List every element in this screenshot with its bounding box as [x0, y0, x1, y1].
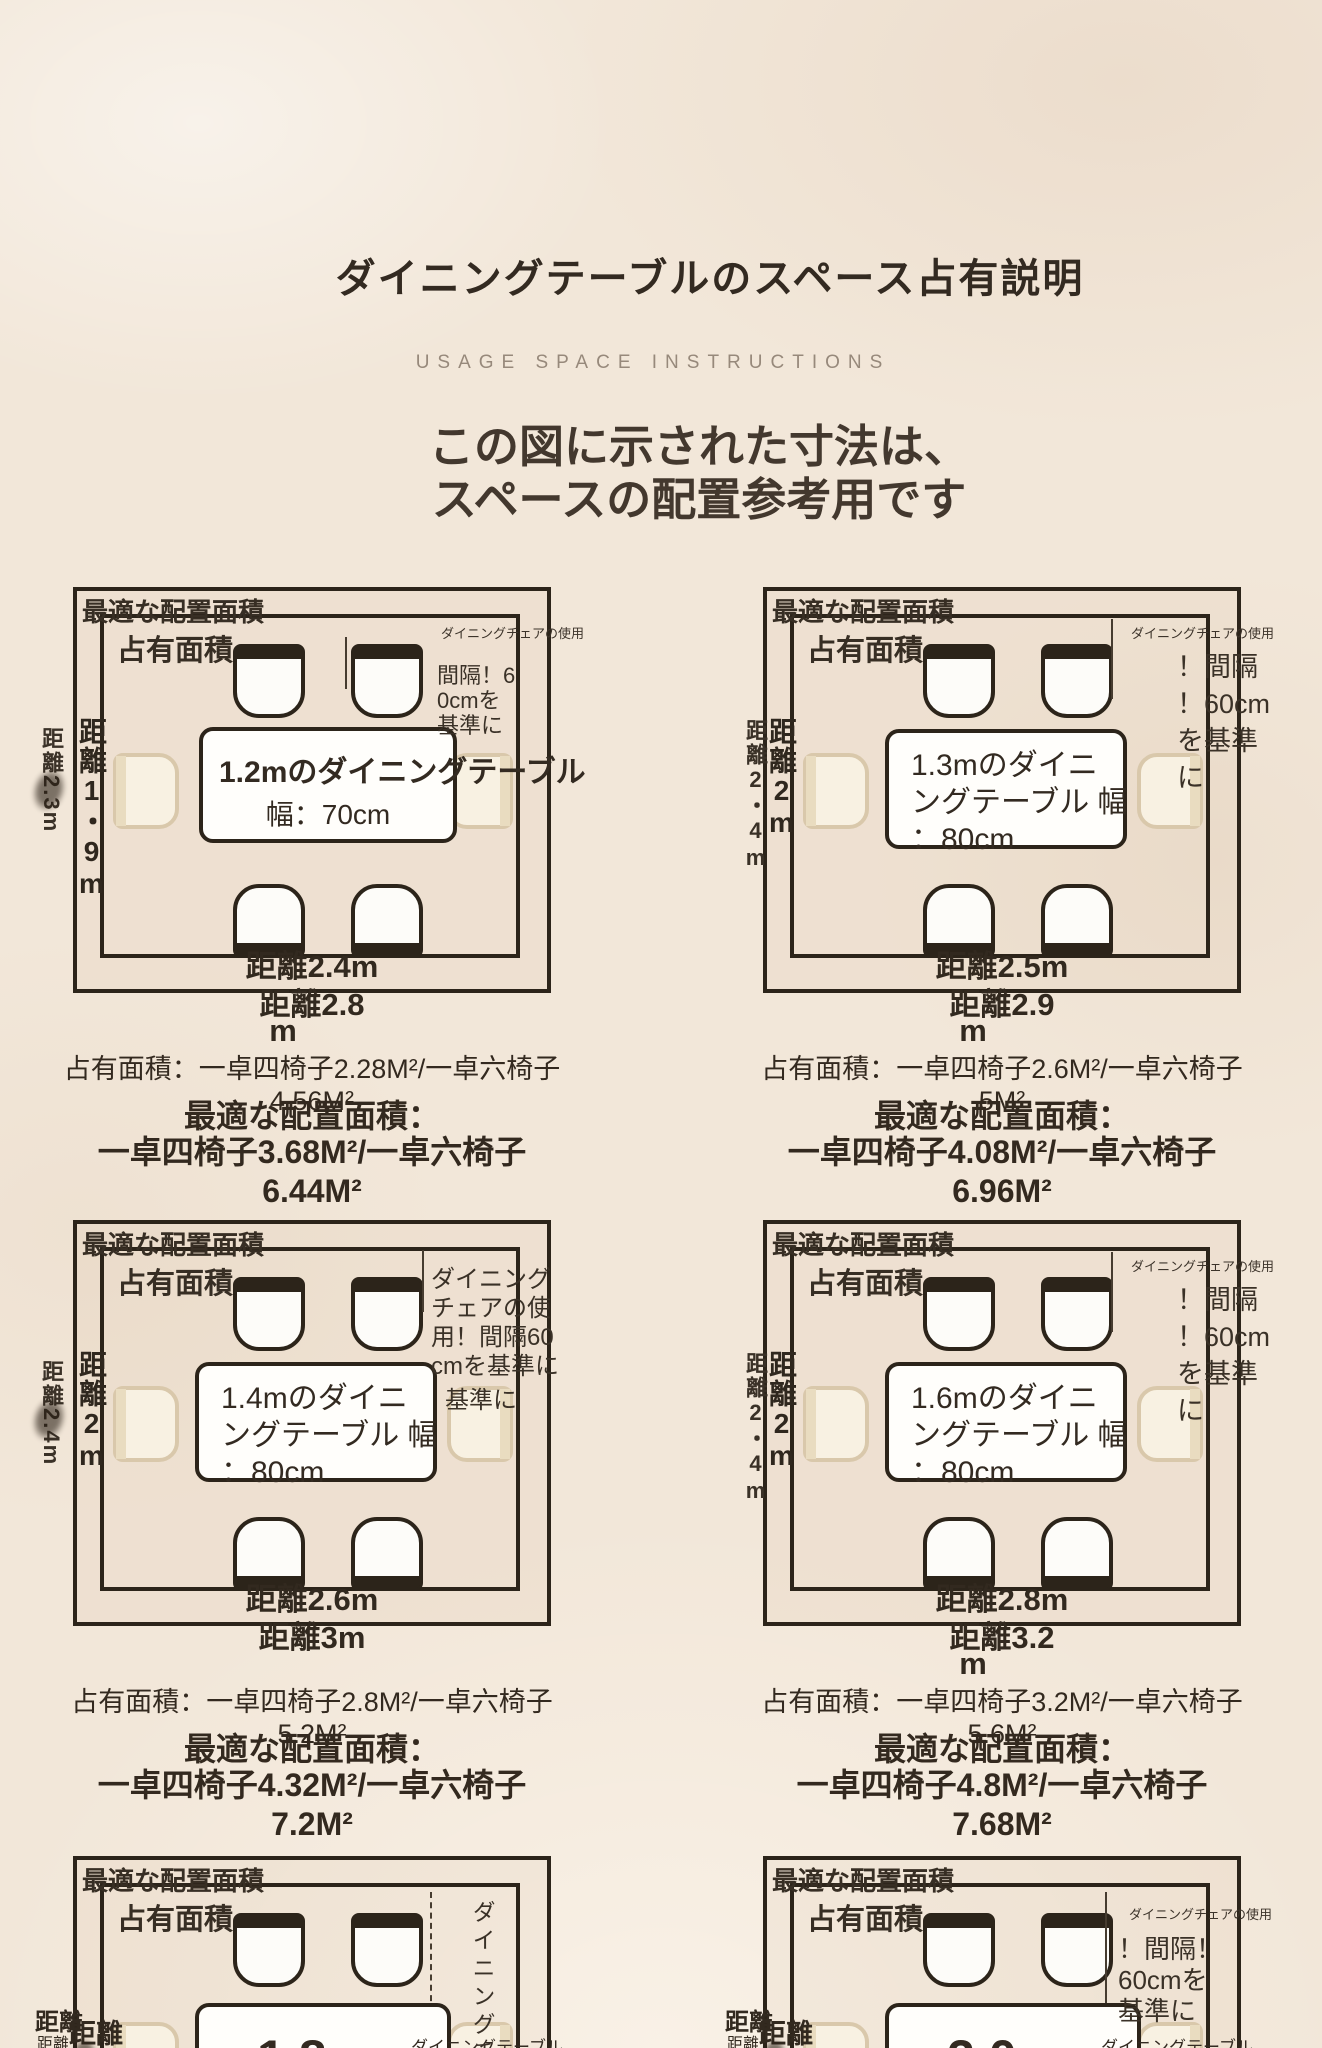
note-line: 間隔！6	[437, 663, 515, 688]
optimal-area-label: 最適な配置面積	[772, 1861, 954, 1898]
chair-usage-note: ダイニングチェアの使用	[1131, 623, 1274, 642]
chair-top-right	[351, 1277, 423, 1351]
note-line: 基準に	[1118, 1996, 1222, 2027]
panel-table-1-4m: 最適な配置面積 占有面積 1.4mのダイニ ングテーブル 幅 ：80cm ダイニ…	[73, 1220, 551, 1626]
chair-top-left	[923, 1913, 995, 1987]
chair-spacing-note: ダイニング チェアの使 用！間隔60 cmを基準に 基準に	[431, 1265, 559, 1415]
note-line: 用！間隔60	[431, 1323, 559, 1352]
optimal-area-label: 最適な配置面積	[82, 1861, 264, 1898]
panel-table-1-3m: 最適な配置面積 占有面積 1.3mのダイニ ングテーブル 幅 ：80cm ダイニ…	[763, 587, 1241, 993]
distance-left-inner: 距離1・9m	[71, 717, 111, 900]
table-size-label: 1.2mのダイニングテーブル	[219, 747, 453, 791]
optimal-area-label: 最適な配置面積	[82, 592, 264, 629]
note-leader-line	[1111, 1252, 1113, 1332]
chair-side-left	[803, 1386, 869, 1462]
chair-side-left	[113, 1386, 179, 1462]
dimension-note-line2: スペースの配置参考用です	[38, 473, 1322, 526]
table-label-line: ：80cm	[911, 1454, 1123, 1491]
chair-top-left	[233, 644, 305, 718]
note-line: を基準	[1177, 723, 1270, 760]
table-label-line: 1.3mのダイニ	[911, 747, 1123, 784]
optimal-area-summary-value: 一卓四椅子4.08M²/一卓六椅子6.96M²	[749, 1127, 1256, 1210]
chair-spacing-note: ！間隔 ！60cm を基準 に	[1177, 649, 1270, 797]
note-leader-line	[422, 1250, 424, 1312]
table-label-line: ングテーブル 幅	[911, 1417, 1123, 1454]
dining-table-shape: 1.2mのダイニングテーブル 幅：70cm	[199, 727, 457, 843]
chair-spacing-note-vertical: ダイニングチェ	[465, 1900, 499, 2048]
optimal-area-label: 最適な配置面積	[772, 1225, 954, 1262]
chair-side-left	[803, 753, 869, 829]
note-line: ！間隔	[1177, 649, 1270, 686]
chair-side-left	[113, 753, 179, 829]
dining-table-space-infographic: ダイニングテーブルのスペース占有説明 USAGE SPACE INSTRUCTI…	[0, 0, 1322, 2048]
chair-usage-note: ダイニングチェアの使用	[1129, 1904, 1272, 1923]
chair-top-left	[923, 644, 995, 718]
dining-table-shape: 1.3mのダイニ ングテーブル 幅 ：80cm	[885, 729, 1127, 849]
dining-table-shape: 2.0m ダイニングテーブル	[885, 2003, 1141, 2048]
distance-bottom-outer-unit: m	[933, 1013, 1013, 1049]
distance-left-inner: 距離2m	[761, 1350, 801, 1472]
distance-left-inner: 距離2m	[761, 717, 801, 839]
chair-top-left	[923, 1277, 995, 1351]
optimal-area-label: 最適な配置面積	[82, 1225, 264, 1262]
occupied-area-label: 占有面積	[807, 627, 923, 669]
note-line: 基準に	[445, 1386, 559, 1415]
note-line: ！60cm	[1177, 686, 1270, 723]
note-line: cmを基準に	[431, 1352, 559, 1381]
dimension-note-line1: この図に示された寸法は、	[38, 420, 1322, 473]
panel-table-1-8m: 最適な配置面積 占有面積 1.8m ダイニングテーブル ダイニングチェ 距離 距…	[73, 1856, 551, 2048]
page-title: ダイニングテーブルのスペース占有説明	[49, 246, 1322, 304]
table-label-line: ングテーブル 幅	[221, 1417, 433, 1454]
chair-top-right	[1041, 1913, 1113, 1987]
dining-table-shape: 1.8m ダイニングテーブル	[195, 2003, 451, 2048]
distance-bottom-outer: 距離3m	[73, 1612, 551, 1657]
panel-table-2-0m: 最適な配置面積 占有面積 2.0m ダイニングテーブル ダイニングチェアの使用 …	[763, 1856, 1241, 2048]
note-line: に	[1177, 1393, 1270, 1430]
table-size-label: 2.0m	[947, 2029, 1061, 2048]
note-leader-line	[345, 637, 347, 689]
occupied-area-label: 占有面積	[117, 627, 233, 669]
chair-spacing-note: 間隔！6 0cmを 基準に	[437, 663, 515, 738]
note-line: 基準に	[437, 713, 515, 738]
panel-table-1-2m: 最適な配置面積 占有面積 1.2mのダイニングテーブル 幅：70cm ダイニング…	[73, 587, 551, 993]
note-line: ！間隔！	[1118, 1934, 1222, 1965]
note-line: を基準	[1177, 1356, 1270, 1393]
table-small-label: ダイニングテーブル	[1101, 2033, 1253, 2048]
occupied-area-label: 占有面積	[807, 1260, 923, 1302]
dimension-note: この図に示された寸法は、 スペースの配置参考用です	[38, 420, 1322, 526]
table-size-label: 1.8m	[257, 2029, 371, 2048]
note-line: 0cmを	[437, 688, 515, 713]
chair-top-right	[1041, 644, 1113, 718]
chair-top-left	[233, 1277, 305, 1351]
table-label-line: 1.4mのダイニ	[221, 1380, 433, 1417]
distance-bottom-outer-unit: m	[243, 1013, 323, 1049]
panel-table-1-6m: 最適な配置面積 占有面積 1.6mのダイニ ングテーブル 幅 ：80cm ダイニ…	[763, 1220, 1241, 1626]
table-label-line: 1.6mのダイニ	[911, 1380, 1123, 1417]
chair-usage-note: ダイニングチェアの使用	[1131, 1256, 1274, 1275]
chair-top-right	[351, 644, 423, 718]
chair-usage-note: ダイニングチェアの使用	[441, 623, 584, 642]
optimal-area-summary-value: 一卓四椅子3.68M²/一卓六椅子6.44M²	[59, 1127, 566, 1210]
optimal-area-summary-value: 一卓四椅子4.8M²/一卓六椅子7.68M²	[749, 1760, 1256, 1843]
note-line: ダイニング	[431, 1265, 559, 1294]
occupied-area-label: 占有面積	[117, 1260, 233, 1302]
note-line: チェアの使	[431, 1294, 559, 1323]
table-label-line: ：80cm	[221, 1454, 433, 1491]
dining-table-shape: 1.4mのダイニ ングテーブル 幅 ：80cm	[195, 1362, 437, 1482]
chair-top-right	[1041, 1277, 1113, 1351]
chair-spacing-note: ！間隔！ 60cmを 基準に	[1118, 1934, 1222, 2027]
table-label-line: ングテーブル 幅	[911, 784, 1123, 821]
note-line: ！60cm	[1177, 1319, 1270, 1356]
note-leader-line	[1111, 619, 1113, 699]
distance-left-inner: 距離2m	[71, 1350, 111, 1472]
distance-bottom-outer-unit: m	[933, 1646, 1013, 1682]
occupied-area-label: 占有面積	[117, 1896, 233, 1938]
chair-top-right	[351, 1913, 423, 1987]
optimal-area-summary-value: 一卓四椅子4.32M²/一卓六椅子7.2M²	[59, 1760, 566, 1843]
table-label-line: ：80cm	[911, 821, 1123, 858]
dining-table-shape: 1.6mのダイニ ングテーブル 幅 ：80cm	[885, 1362, 1127, 1482]
chair-top-left	[233, 1913, 305, 1987]
page-subtitle-en: USAGE SPACE INSTRUCTIONS	[0, 352, 1314, 374]
distance-left-outer-small: 距離	[727, 2030, 759, 2048]
note-line: 60cmを	[1118, 1965, 1222, 1996]
distance-left-outer-small: 距離	[37, 2030, 69, 2048]
chair-spacing-note: ！間隔 ！60cm を基準 に	[1177, 1282, 1270, 1430]
occupied-area-label: 占有面積	[807, 1896, 923, 1938]
note-line: に	[1177, 760, 1270, 797]
optimal-area-label: 最適な配置面積	[772, 592, 954, 629]
note-line: ！間隔	[1177, 1282, 1270, 1319]
table-width-label: 幅：70cm	[203, 793, 453, 833]
